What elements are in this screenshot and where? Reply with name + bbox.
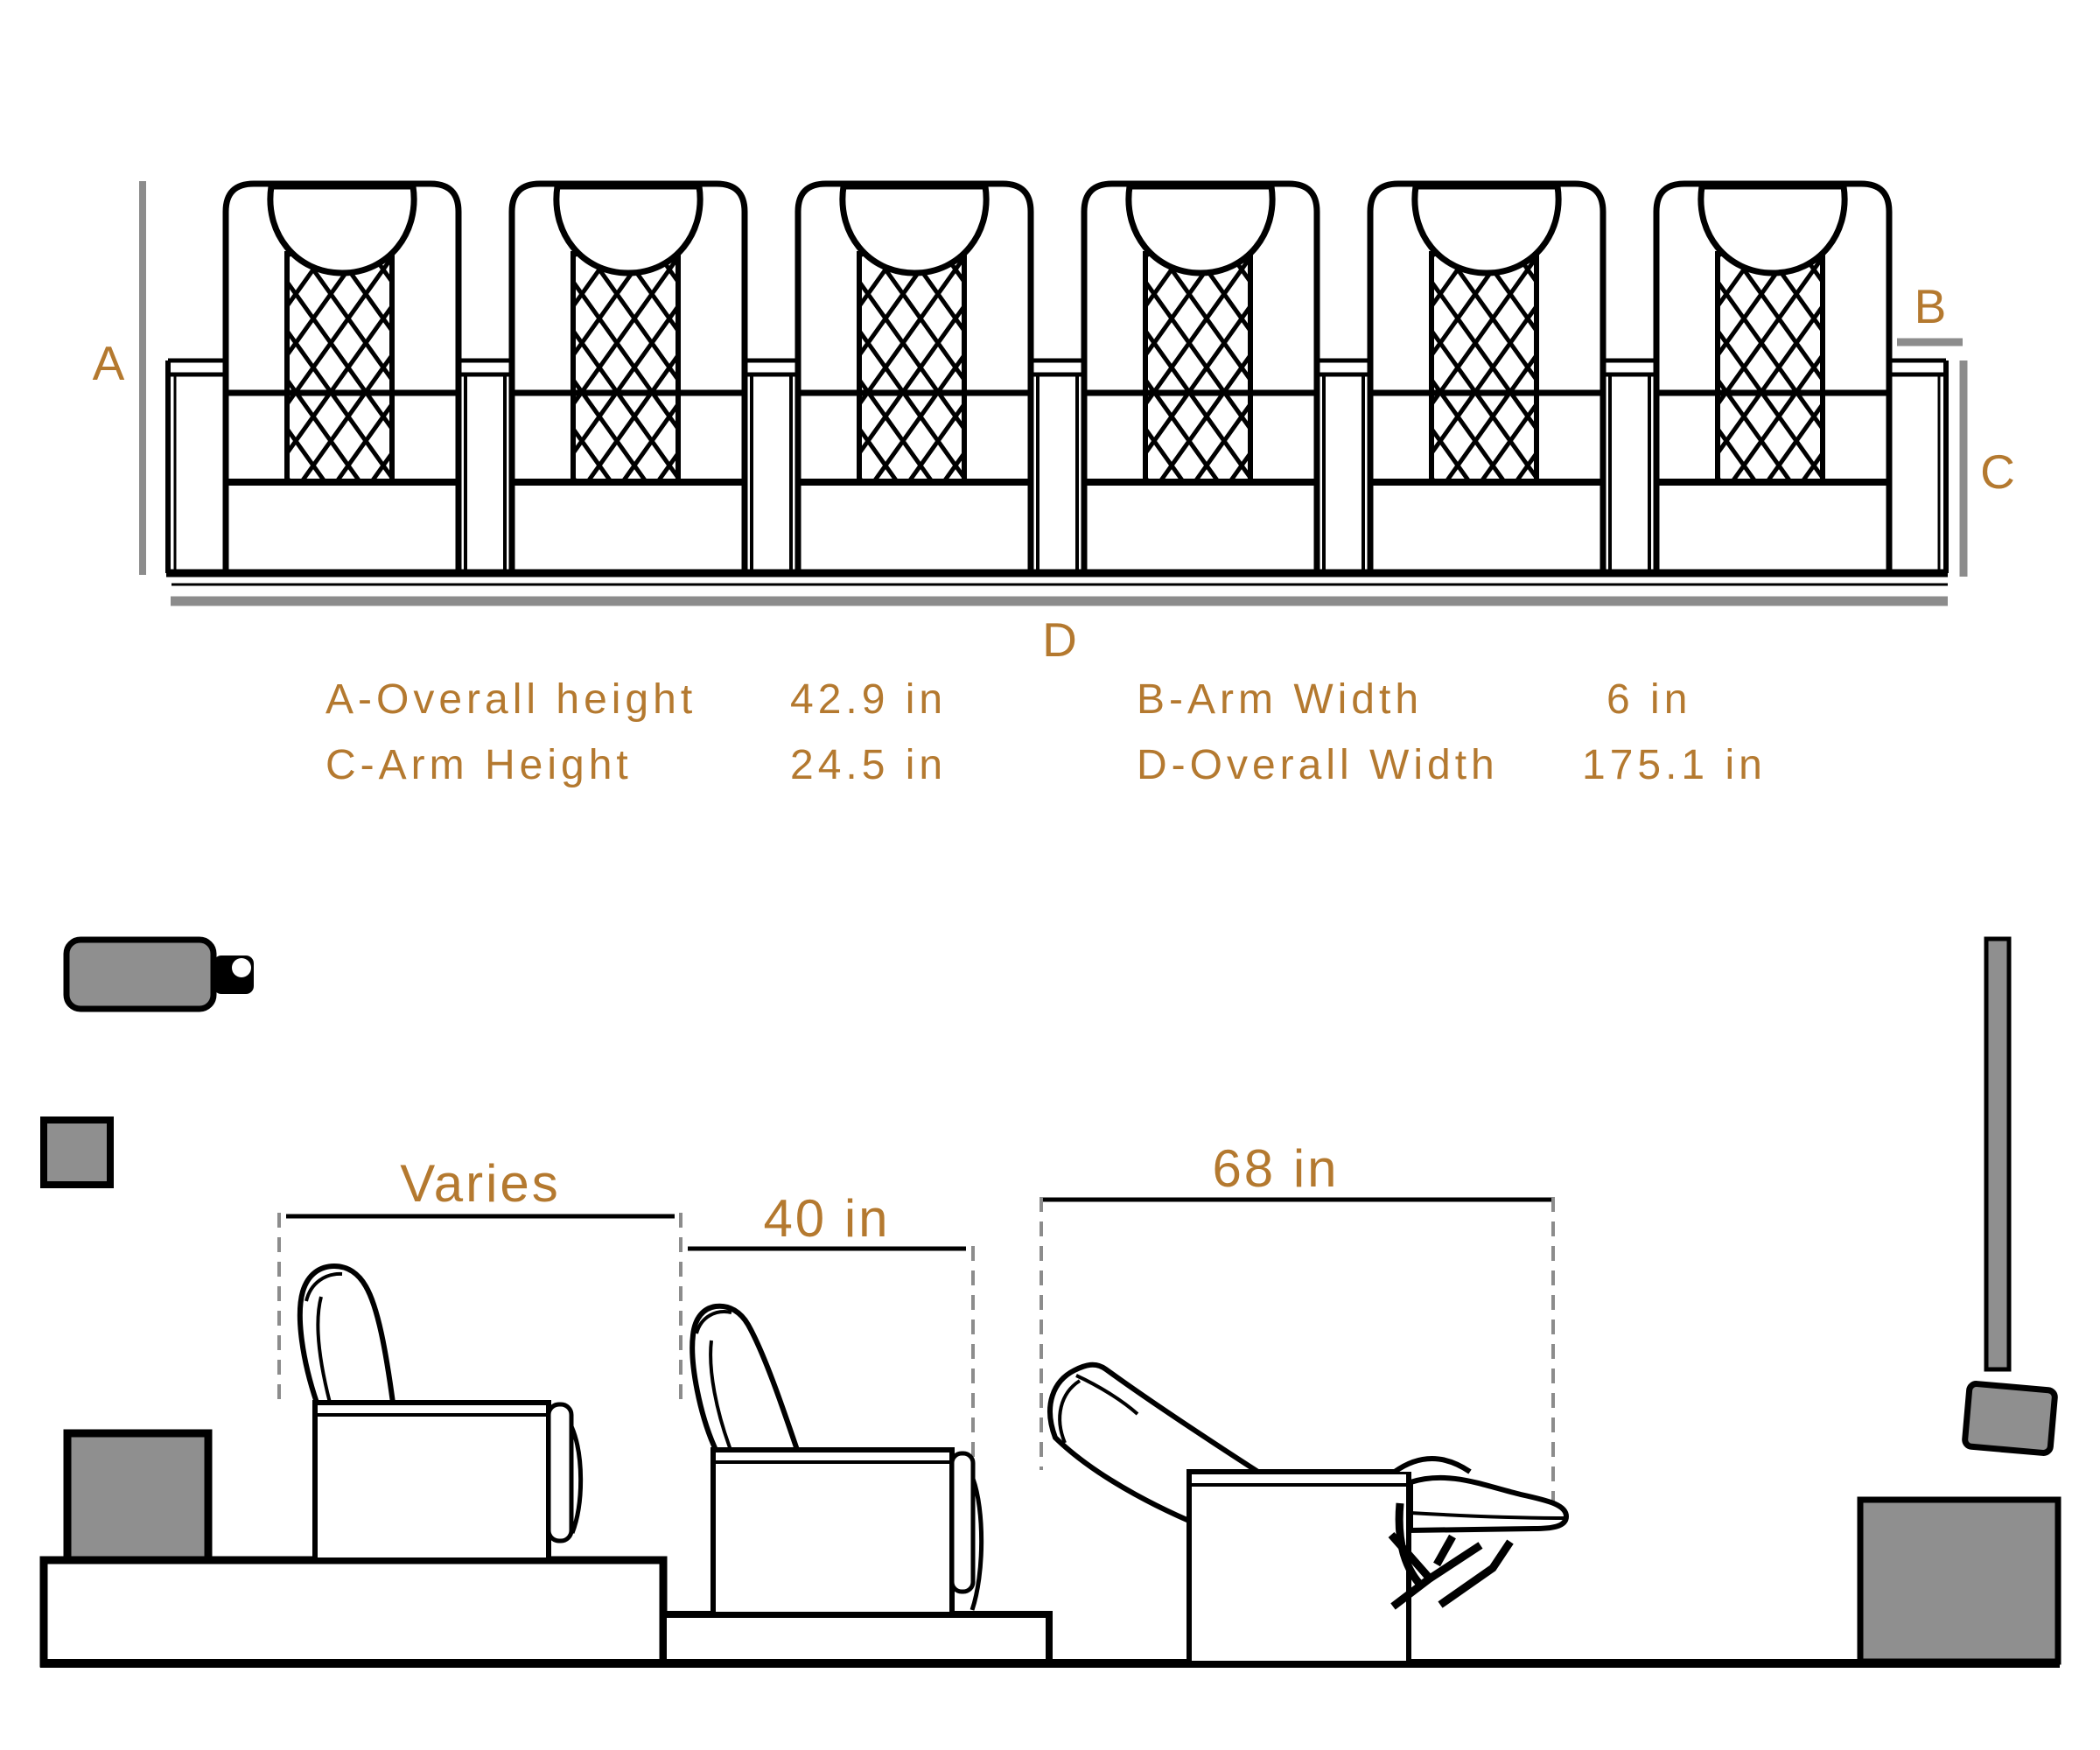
theater-seating-dimensions-diagram: A B C D — [0, 0, 2100, 1750]
recliner-partially-reclined — [692, 1306, 981, 1614]
recliner-fully-reclined — [1050, 1365, 1566, 1663]
riser-back — [44, 1560, 663, 1663]
dim-d: D — [171, 601, 1948, 667]
projector-icon — [66, 940, 254, 1009]
dim-label-40in: 40 in — [763, 1189, 890, 1248]
theater-seat-5 — [1370, 184, 1603, 574]
legend-c-value: 24.5 in — [790, 745, 947, 787]
theater-seat-3 — [798, 184, 1031, 574]
screen-bar-icon — [1986, 939, 2009, 1369]
recliner-upright — [300, 1266, 581, 1560]
legend-d-value: 175.1 in — [1582, 745, 1767, 787]
dim-label-b: B — [1914, 279, 1947, 333]
dim-label-varies: Varies — [400, 1154, 561, 1213]
dim-label-c: C — [1980, 444, 2015, 499]
theater-seat-2 — [512, 184, 745, 574]
dim-b: B — [1897, 279, 1963, 342]
dim-label-a: A — [93, 336, 125, 390]
theater-seat-4 — [1084, 184, 1317, 574]
dim-varies: Varies — [286, 1154, 675, 1216]
diagram-canvas: A B C D — [0, 0, 2100, 1750]
riser-middle — [663, 1614, 1049, 1663]
legend-b-label: B-Arm Width — [1137, 679, 1423, 721]
seat-row — [226, 184, 1889, 574]
front-view — [166, 184, 1948, 584]
legend-a-label: A-Overall height — [325, 679, 696, 721]
dim-a: A — [93, 181, 143, 575]
subwoofer-left-icon — [67, 1433, 208, 1560]
dim-label-d: D — [1042, 612, 1077, 667]
legend-d-label: D-Overall Width — [1137, 745, 1499, 787]
legend-a-value: 42.9 in — [790, 679, 947, 721]
legend-b-value: 6 in — [1606, 679, 1691, 721]
theater-seat-1 — [226, 184, 458, 574]
theater-seat-6 — [1656, 184, 1889, 574]
angled-speaker-icon — [1964, 1383, 2055, 1453]
legend-c-label: C-Arm Height — [325, 745, 633, 787]
dim-40in: 40 in — [688, 1189, 966, 1249]
footrest — [1410, 1478, 1566, 1530]
dim-68in: 68 in — [1043, 1139, 1551, 1200]
subwoofer-right-icon — [1860, 1500, 2058, 1662]
dim-c: C — [1963, 360, 2015, 577]
dim-label-68in: 68 in — [1212, 1139, 1339, 1198]
surround-speaker-icon — [44, 1120, 110, 1185]
